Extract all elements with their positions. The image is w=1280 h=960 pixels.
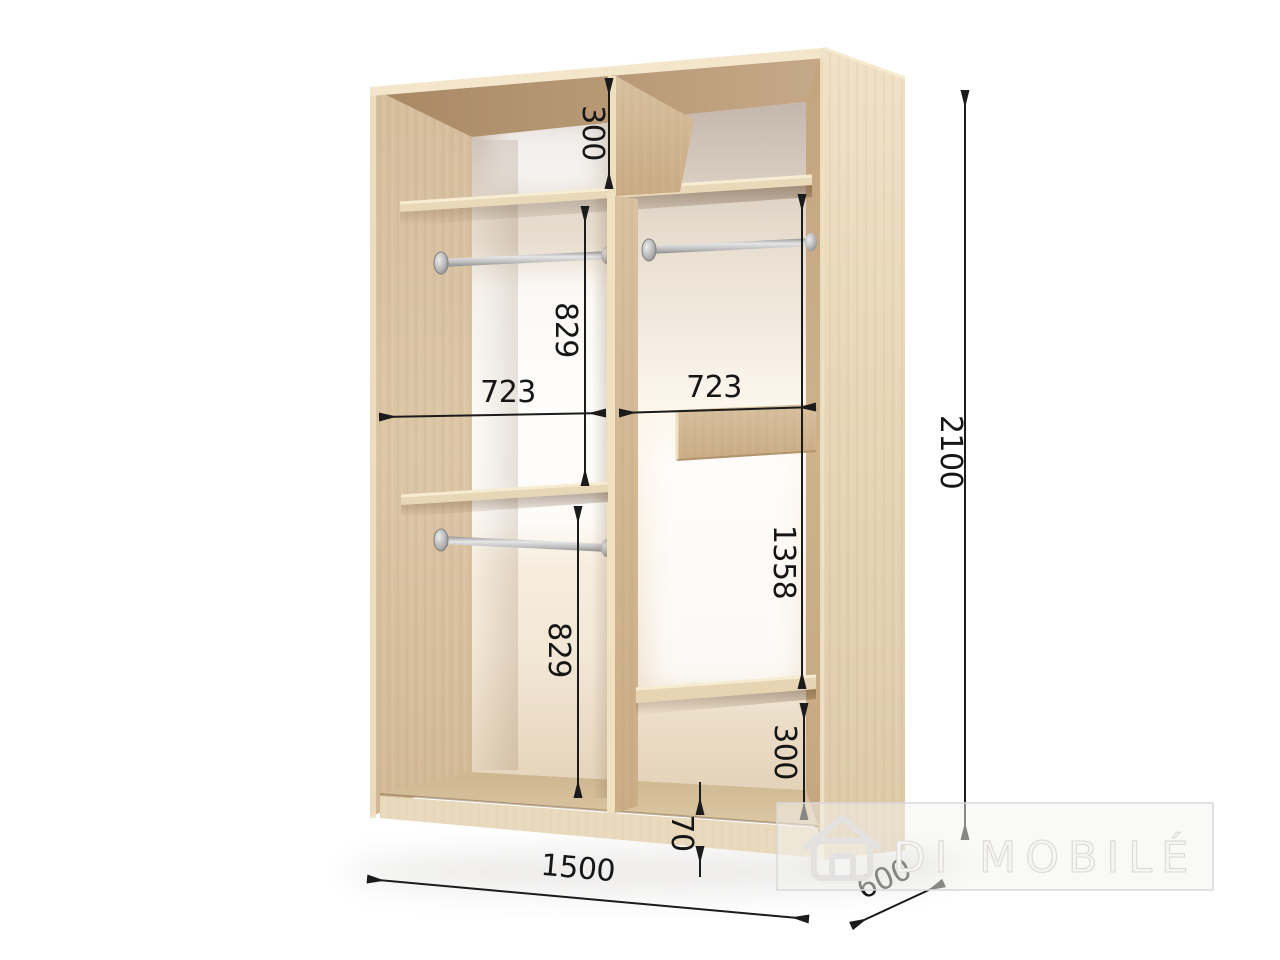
dim-label-lower-hanging-left: 829	[541, 622, 576, 678]
wardrobe-dimension-diagram: 300 829 723 723 829 1358 300	[0, 0, 1280, 960]
dim-label-overall-width: 1500	[539, 848, 616, 890]
brand-watermark: DI MOBILÉ	[777, 803, 1213, 890]
dim-overall-height: 2100	[933, 90, 968, 840]
dim-label-top-shelf-height: 300	[575, 105, 610, 161]
left-panel-front-edge	[370, 87, 376, 818]
back-wall-corner-shade	[472, 140, 518, 770]
left-panel-inner-grain	[370, 87, 472, 817]
dim-label-upper-hanging-left: 829	[548, 302, 583, 358]
right-stiffener-panel	[677, 404, 816, 461]
dim-label-right-compartment-width: 723	[686, 370, 742, 405]
watermark-brand-text: DI MOBILÉ	[893, 832, 1198, 883]
right-panel-exterior-grain	[823, 48, 905, 860]
dim-label-plinth-height: 70	[664, 814, 699, 851]
dim-label-left-compartment-width: 723	[480, 375, 536, 410]
front-right-edge	[820, 48, 824, 860]
dim-label-bottom-shelf-right: 300	[767, 724, 802, 780]
dim-label-right-middle-section: 1358	[766, 525, 801, 599]
dim-label-overall-height: 2100	[933, 415, 968, 489]
diagram-canvas: 300 829 723 723 829 1358 300	[0, 0, 1280, 960]
central-divider-lower	[607, 193, 638, 813]
wardrobe-render	[345, 48, 970, 896]
